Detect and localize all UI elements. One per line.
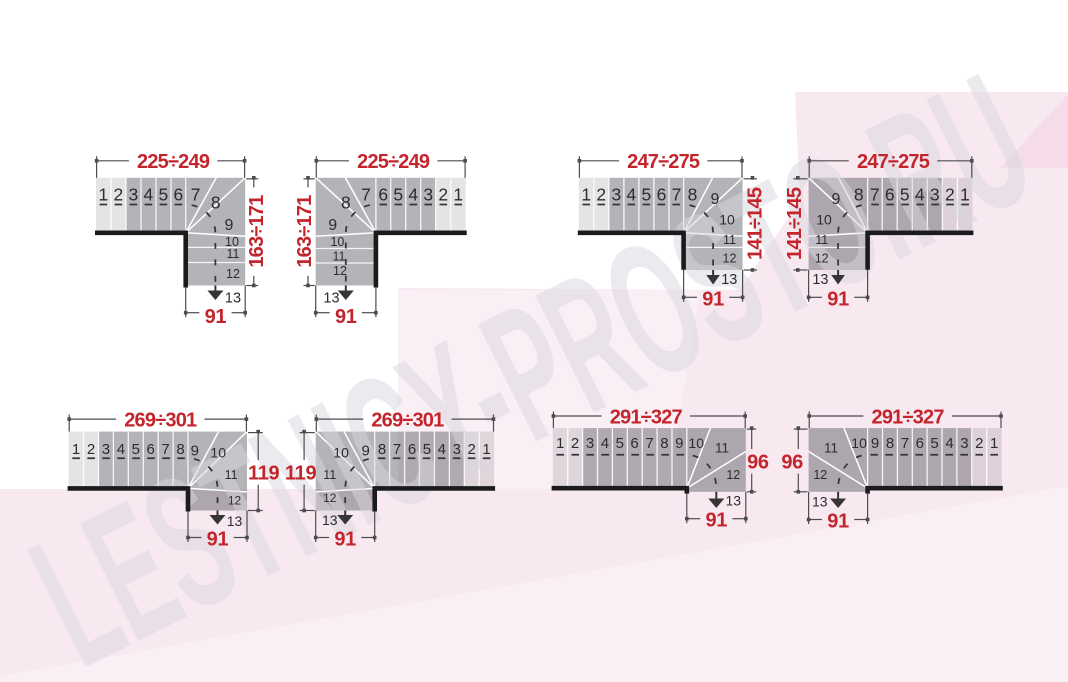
svg-text:5: 5: [930, 435, 938, 452]
svg-text:91: 91: [205, 306, 227, 328]
svg-text:3: 3: [612, 184, 622, 204]
svg-text:163÷171: 163÷171: [246, 195, 268, 268]
svg-text:291÷327: 291÷327: [610, 406, 683, 428]
svg-text:1: 1: [581, 184, 591, 204]
svg-text:12: 12: [323, 491, 337, 505]
svg-text:10: 10: [688, 435, 704, 451]
svg-text:91: 91: [334, 528, 356, 550]
svg-text:119: 119: [285, 463, 317, 485]
svg-text:8: 8: [211, 193, 221, 213]
svg-text:3: 3: [960, 435, 968, 452]
svg-text:10: 10: [210, 444, 226, 460]
svg-text:3: 3: [102, 441, 110, 458]
svg-text:4: 4: [408, 184, 418, 204]
svg-text:1: 1: [453, 184, 463, 204]
svg-text:10: 10: [330, 235, 344, 249]
svg-text:1: 1: [99, 184, 109, 204]
svg-text:12: 12: [726, 468, 740, 482]
svg-text:4: 4: [915, 184, 925, 204]
svg-text:6: 6: [408, 441, 416, 458]
svg-text:11: 11: [227, 247, 240, 261]
svg-text:247÷275: 247÷275: [627, 151, 700, 173]
svg-text:8: 8: [688, 184, 698, 204]
svg-text:8: 8: [378, 441, 386, 458]
svg-text:1: 1: [72, 441, 80, 458]
svg-text:12: 12: [815, 252, 829, 266]
svg-text:7: 7: [191, 184, 201, 204]
svg-text:11: 11: [723, 233, 736, 247]
svg-text:269÷301: 269÷301: [371, 409, 444, 431]
svg-text:7: 7: [361, 184, 371, 204]
svg-text:5: 5: [642, 184, 652, 204]
svg-text:9: 9: [832, 191, 841, 208]
svg-text:5: 5: [393, 184, 403, 204]
svg-text:12: 12: [228, 494, 242, 508]
svg-text:91: 91: [827, 510, 849, 532]
svg-text:12: 12: [226, 267, 240, 281]
svg-text:11: 11: [225, 468, 238, 482]
svg-text:291÷327: 291÷327: [872, 406, 945, 428]
svg-text:1: 1: [482, 441, 490, 458]
svg-text:10: 10: [719, 211, 735, 227]
svg-text:4: 4: [627, 184, 637, 204]
svg-text:13: 13: [323, 291, 339, 307]
svg-text:7: 7: [901, 435, 909, 452]
svg-text:13: 13: [322, 512, 338, 528]
svg-text:225÷249: 225÷249: [137, 151, 210, 173]
svg-text:91: 91: [335, 306, 357, 328]
svg-text:9: 9: [871, 435, 879, 452]
svg-text:11: 11: [333, 249, 346, 263]
svg-text:6: 6: [916, 435, 924, 452]
svg-text:163÷171: 163÷171: [294, 195, 316, 268]
svg-text:13: 13: [726, 493, 742, 509]
svg-text:225÷249: 225÷249: [357, 151, 430, 173]
svg-text:13: 13: [227, 513, 243, 529]
svg-text:3: 3: [586, 435, 594, 452]
svg-text:1: 1: [556, 435, 564, 452]
svg-text:2: 2: [975, 435, 983, 452]
svg-text:119: 119: [248, 463, 280, 485]
svg-text:2: 2: [87, 441, 95, 458]
svg-text:11: 11: [824, 441, 838, 456]
svg-text:5: 5: [423, 441, 431, 458]
svg-text:5: 5: [132, 441, 140, 458]
svg-text:7: 7: [161, 441, 169, 458]
svg-text:8: 8: [341, 193, 351, 213]
svg-text:10: 10: [816, 211, 832, 227]
svg-text:12: 12: [333, 264, 347, 278]
svg-text:91: 91: [827, 289, 849, 311]
svg-text:2: 2: [468, 441, 476, 458]
svg-text:12: 12: [813, 468, 827, 482]
svg-text:269÷301: 269÷301: [124, 409, 197, 431]
svg-text:10: 10: [333, 444, 349, 460]
svg-text:1: 1: [990, 435, 998, 452]
svg-text:7: 7: [870, 184, 880, 204]
svg-text:6: 6: [174, 184, 184, 204]
svg-text:91: 91: [705, 510, 727, 532]
svg-text:6: 6: [147, 441, 155, 458]
svg-text:13: 13: [812, 493, 828, 509]
svg-text:4: 4: [438, 441, 446, 458]
svg-text:4: 4: [144, 184, 154, 204]
svg-text:96: 96: [747, 452, 769, 474]
svg-text:247÷275: 247÷275: [857, 151, 930, 173]
svg-text:9: 9: [328, 217, 337, 234]
svg-text:2: 2: [945, 184, 955, 204]
svg-text:2: 2: [438, 184, 448, 204]
svg-text:3: 3: [453, 441, 461, 458]
svg-text:5: 5: [616, 435, 624, 452]
svg-text:13: 13: [721, 272, 737, 288]
svg-text:8: 8: [660, 435, 668, 452]
svg-text:9: 9: [362, 443, 370, 460]
svg-text:91: 91: [207, 528, 229, 550]
svg-text:9: 9: [711, 191, 720, 208]
svg-text:1: 1: [960, 184, 970, 204]
svg-text:141÷145: 141÷145: [784, 187, 806, 260]
svg-text:12: 12: [723, 252, 737, 266]
svg-text:7: 7: [393, 441, 401, 458]
svg-text:10: 10: [851, 435, 867, 451]
svg-text:6: 6: [630, 435, 638, 452]
svg-text:4: 4: [945, 435, 953, 452]
svg-text:141÷145: 141÷145: [745, 187, 767, 260]
svg-text:6: 6: [657, 184, 667, 204]
svg-text:7: 7: [672, 184, 682, 204]
svg-text:9: 9: [225, 217, 234, 234]
svg-text:4: 4: [117, 441, 125, 458]
svg-text:6: 6: [885, 184, 895, 204]
svg-text:11: 11: [815, 233, 828, 247]
svg-text:8: 8: [176, 441, 184, 458]
svg-text:2: 2: [596, 184, 606, 204]
svg-text:5: 5: [159, 184, 169, 204]
svg-text:11: 11: [323, 468, 336, 482]
svg-text:11: 11: [715, 441, 729, 456]
svg-text:4: 4: [601, 435, 609, 452]
svg-text:13: 13: [225, 291, 241, 307]
svg-text:3: 3: [423, 184, 433, 204]
svg-text:13: 13: [812, 272, 828, 288]
svg-text:7: 7: [645, 435, 653, 452]
svg-text:8: 8: [886, 435, 894, 452]
svg-text:5: 5: [900, 184, 910, 204]
svg-text:9: 9: [675, 435, 683, 452]
svg-text:9: 9: [191, 443, 199, 460]
svg-text:2: 2: [571, 435, 579, 452]
svg-text:6: 6: [378, 184, 388, 204]
svg-text:96: 96: [781, 452, 803, 474]
svg-text:3: 3: [129, 184, 139, 204]
svg-text:2: 2: [114, 184, 124, 204]
svg-text:91: 91: [702, 289, 724, 311]
svg-text:3: 3: [930, 184, 940, 204]
svg-text:8: 8: [854, 184, 864, 204]
